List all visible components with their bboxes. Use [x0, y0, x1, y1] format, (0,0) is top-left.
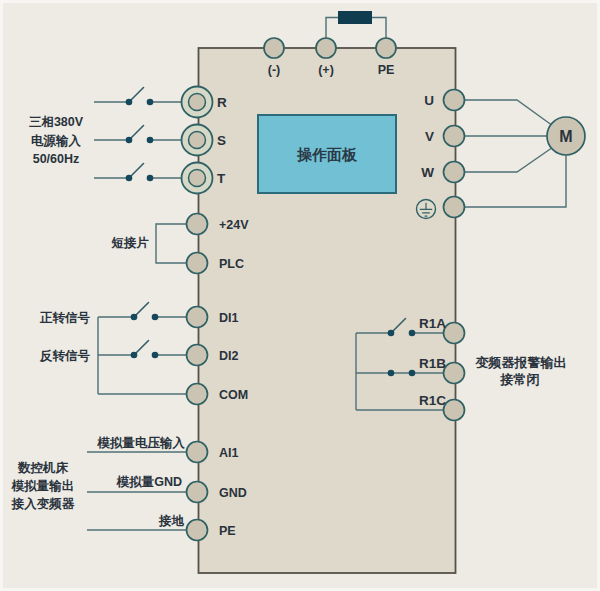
- terminal-di1: [187, 307, 208, 328]
- terminal-label-pe-top: PE: [378, 63, 395, 77]
- terminal-24v: [187, 214, 208, 235]
- terminal-label-pe-left: PE: [219, 524, 236, 538]
- switch-reverse: [98, 341, 187, 359]
- terminal-label-r: R: [217, 95, 227, 110]
- terminal-label-r1c: R1C: [419, 393, 446, 408]
- jumper-label: 短接片: [111, 236, 150, 250]
- terminal-plc: [187, 253, 208, 274]
- digital-input-circuit: [98, 303, 187, 395]
- terminal-r1b: [444, 363, 465, 384]
- relay-note-line1: 变频器报警输出: [475, 355, 567, 370]
- terminal-label-r1b: R1B: [419, 356, 446, 371]
- cnc-line1: 数控机床: [17, 461, 69, 475]
- terminal-label-gnd: GND: [219, 486, 247, 500]
- terminal-label-24v: +24V: [219, 218, 249, 232]
- forward-signal-label: 正转信号: [39, 311, 91, 325]
- power-input-line3: 50/60Hz: [33, 152, 80, 166]
- terminal-s-inner: [189, 132, 206, 149]
- terminal-com: [187, 384, 208, 405]
- terminal-label-di1: DI1: [219, 311, 239, 325]
- resistor-lead-left: [326, 18, 338, 39]
- terminal-label-s: S: [217, 133, 226, 148]
- w-wire: [465, 149, 552, 173]
- switch-forward: [98, 303, 187, 321]
- switch-r: [94, 88, 182, 106]
- terminal-label-plc: PLC: [219, 257, 244, 271]
- operation-panel-label: 操作面板: [296, 146, 358, 163]
- terminal-label-r1a: R1A: [419, 316, 446, 331]
- terminal-label-w: W: [421, 165, 434, 180]
- reverse-signal-label: 反转信号: [39, 349, 91, 363]
- terminal-label-dc-minus: (-): [268, 63, 281, 77]
- terminal-label-com: COM: [219, 388, 248, 402]
- relay-note: 变频器报警输出 接常闭: [475, 355, 567, 388]
- braking-resistor-circuit: [326, 11, 386, 38]
- resistor-lead-right: [372, 18, 386, 39]
- diagram-canvas: (-) (+) PE 操作面板 三相380V 电源输入 50/60Hz: [0, 0, 600, 591]
- analog-voltage-label: 模拟量电压输入: [97, 436, 186, 450]
- terminal-pe-top: [376, 38, 396, 58]
- terminal-dc-minus: [264, 38, 284, 58]
- terminal-label-u: U: [424, 93, 434, 108]
- analog-gnd-label: 模拟量GND: [116, 475, 182, 489]
- rst-terminals: R S T: [182, 87, 228, 194]
- motor-label: M: [559, 128, 572, 145]
- terminal-r1c: [444, 400, 465, 421]
- terminal-label-di2: DI2: [219, 349, 239, 363]
- terminal-u: [444, 90, 465, 111]
- terminal-gnd: [187, 482, 208, 503]
- terminal-pe-left: [187, 520, 208, 541]
- terminal-v: [444, 126, 465, 147]
- terminal-label-t: T: [217, 171, 226, 186]
- switch-s: [94, 126, 182, 144]
- terminal-t-inner: [189, 170, 206, 187]
- terminal-di2: [187, 345, 208, 366]
- jumper-link: [156, 224, 187, 263]
- earth-label: 接地: [158, 514, 185, 528]
- terminal-dc-plus: [316, 38, 336, 58]
- relay-note-line2: 接常闭: [500, 372, 540, 387]
- u-wire: [465, 100, 552, 125]
- terminal-pe-right: [444, 197, 465, 218]
- power-input-line1: 三相380V: [29, 115, 84, 129]
- terminal-label-v: V: [425, 129, 434, 144]
- terminal-r1a: [444, 323, 465, 344]
- cnc-line2: 模拟量输出: [11, 479, 75, 493]
- terminal-label-ai1: AI1: [219, 446, 239, 460]
- cnc-line3: 接入变频器: [11, 497, 75, 511]
- power-input-circuit: [94, 88, 182, 182]
- motor-ground-wire: [465, 155, 567, 207]
- braking-resistor: [338, 11, 372, 24]
- terminal-label-dc-plus: (+): [318, 63, 334, 77]
- terminal-w: [444, 162, 465, 183]
- switch-t: [94, 164, 182, 182]
- terminal-r-inner: [189, 94, 206, 111]
- cnc-caption: 数控机床 模拟量输出 接入变频器: [11, 461, 75, 511]
- power-input-line2: 电源输入: [31, 134, 82, 148]
- motor-wires: [465, 100, 567, 207]
- terminal-ai1: [187, 442, 208, 463]
- power-input-caption: 三相380V 电源输入 50/60Hz: [29, 115, 84, 166]
- wiring-diagram: (-) (+) PE 操作面板 三相380V 电源输入 50/60Hz: [0, 0, 600, 591]
